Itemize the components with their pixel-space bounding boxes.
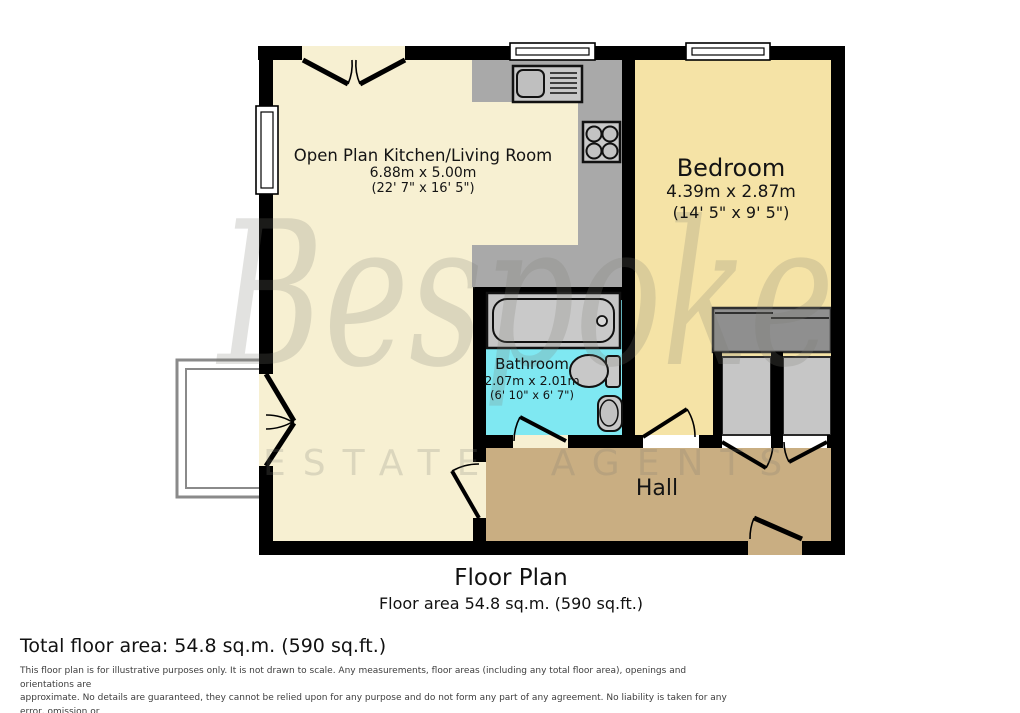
living-room-name: Open Plan Kitchen/Living Room — [273, 147, 573, 165]
bedroom-label: Bedroom 4.39m x 2.87m (14' 5" x 9' 5") — [631, 155, 831, 223]
page-title: Floor Plan — [161, 565, 861, 591]
balcony — [177, 360, 263, 497]
total-floor-area: Total floor area: 54.8 sq.m. (590 sq.ft.… — [20, 635, 386, 657]
living-room-label: Open Plan Kitchen/Living Room 6.88m x 5.… — [273, 147, 573, 196]
disclaimer-line-1: This floor plan is for illustrative purp… — [20, 665, 740, 692]
disclaimer-text: This floor plan is for illustrative purp… — [20, 665, 740, 713]
opening-entrance — [748, 541, 802, 555]
opening-left — [259, 374, 273, 466]
hall-label: Hall — [607, 476, 707, 501]
bathroom-label: Bathroom 2.07m x 2.01m (6' 10" x 6' 7") — [462, 356, 602, 402]
bathtub-icon — [487, 293, 620, 348]
opening-top — [302, 46, 405, 60]
stove-icon — [583, 122, 620, 162]
closet-right — [783, 357, 831, 435]
living-room-size-metric: 6.88m x 5.00m — [273, 165, 573, 181]
disclaimer-line-2: approximate. No details are guaranteed, … — [20, 692, 740, 713]
kitchen-window — [510, 43, 595, 60]
bathroom-size-metric: 2.07m x 2.01m — [462, 373, 602, 388]
sink-unit-icon — [513, 66, 582, 102]
bedroom-name: Bedroom — [631, 155, 831, 182]
bedroom-size-imperial: (14' 5" x 9' 5") — [631, 203, 831, 223]
bathroom-size-imperial: (6' 10" x 6' 7") — [462, 388, 602, 402]
bathroom-name: Bathroom — [462, 356, 602, 373]
bedroom-size-metric: 4.39m x 2.87m — [631, 182, 831, 203]
floor-area-subtitle: Floor area 54.8 sq.m. (590 sq.ft.) — [161, 594, 861, 613]
closet-left — [722, 357, 771, 435]
bedroom-window — [686, 43, 770, 60]
wardrobe — [713, 308, 831, 352]
living-room-size-imperial: (22' 7" x 16' 5") — [273, 181, 573, 196]
floor-plan-page: Bespoke ESTATE AGENTS Open Plan Kitchen/… — [0, 0, 1020, 713]
